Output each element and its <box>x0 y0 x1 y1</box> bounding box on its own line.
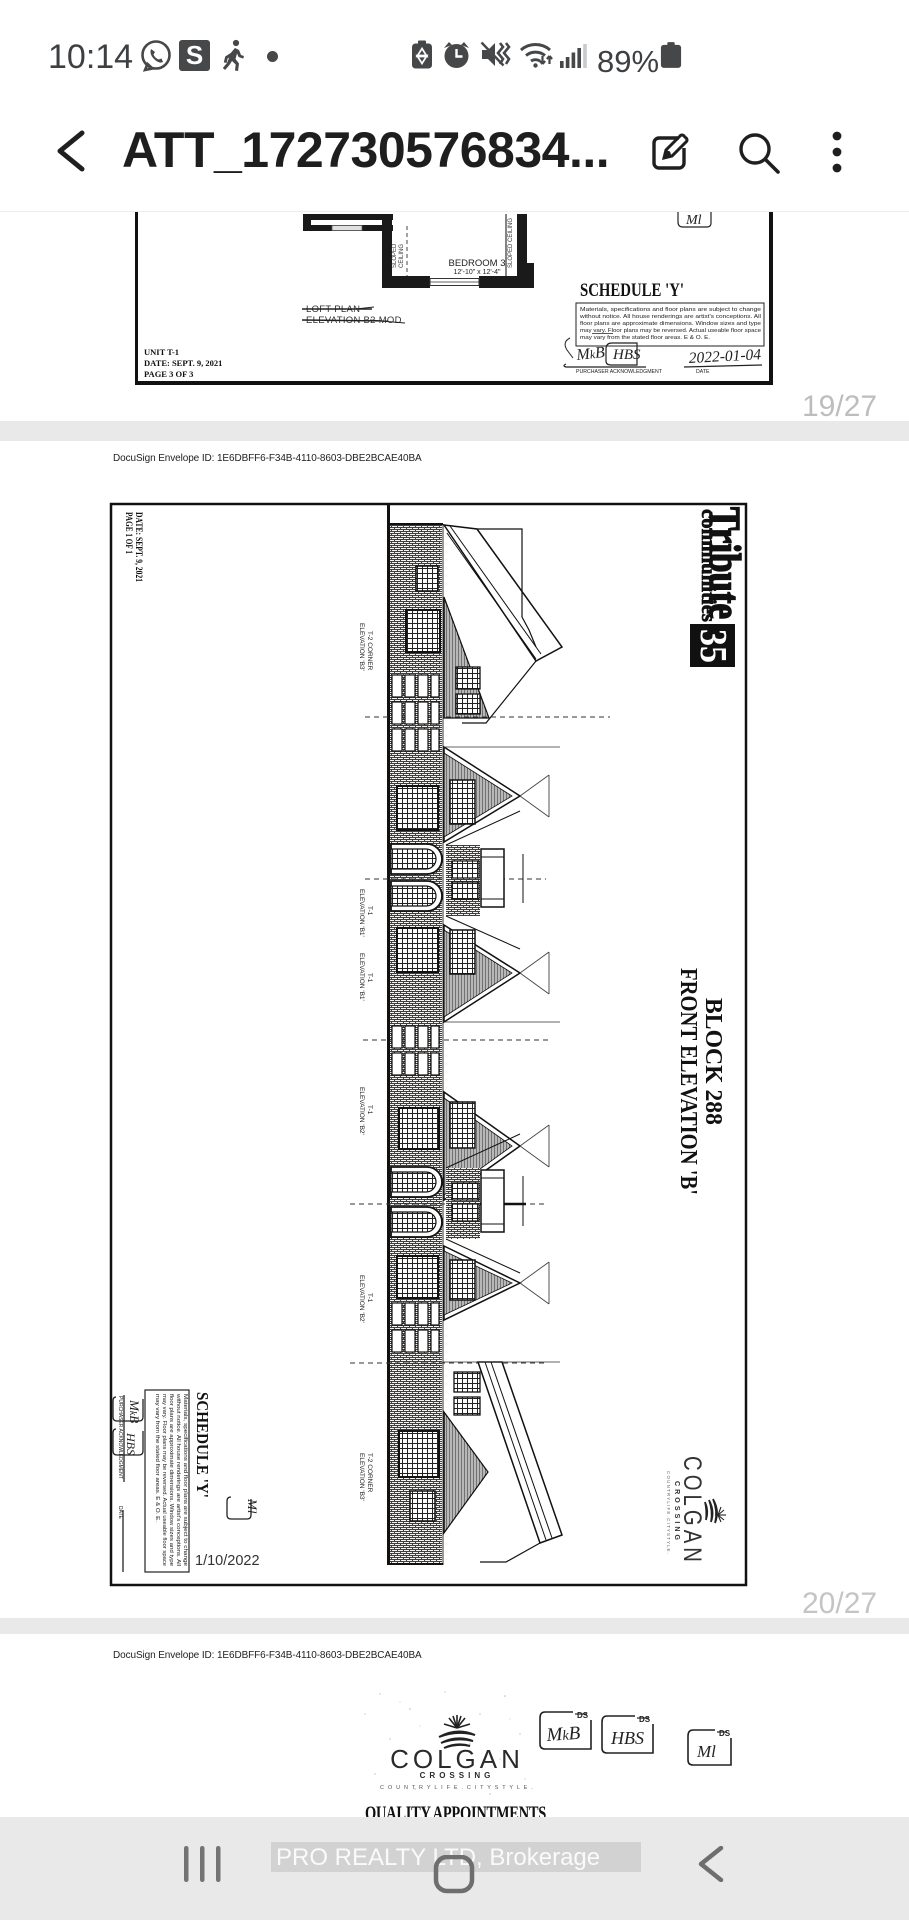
svg-text:C O U N T R Y L I F E . C I: C O U N T R Y L I F E . C I T Y S T Y L … <box>380 1785 534 1791</box>
svg-text:FRONT ELEVATION 'B': FRONT ELEVATION 'B' <box>675 968 701 1195</box>
svg-text:ELEVATION 'B2': ELEVATION 'B2' <box>358 1087 365 1135</box>
svg-text:DATE: SEPT. 9, 2021: DATE: SEPT. 9, 2021 <box>134 512 144 582</box>
svg-text:CEILING: CEILING <box>399 244 405 268</box>
svg-text:COLGAN: COLGAN <box>390 1744 524 1774</box>
svg-text:Ml: Ml <box>696 1742 716 1761</box>
svg-text:DS: DS <box>577 1711 589 1720</box>
svg-text:DS: DS <box>719 1729 731 1738</box>
svg-text:DATE: DATE <box>696 369 710 375</box>
svg-text:T-1: T-1 <box>366 1105 373 1115</box>
svg-text:DATE: DATE <box>117 1506 123 1520</box>
svg-text:2022-01-04: 2022-01-04 <box>688 346 761 367</box>
svg-text:ELEVATION 'B1': ELEVATION 'B1' <box>358 889 365 937</box>
svg-text:35: 35 <box>692 629 734 663</box>
svg-text:MkB: MkB <box>575 344 606 364</box>
svg-text:DocuSign Envelope ID: 1E6DBFF6: DocuSign Envelope ID: 1E6DBFF6-F34B-4110… <box>113 453 422 464</box>
svg-text:UNIT T-1: UNIT T-1 <box>144 347 179 357</box>
svg-text:CROSSING: CROSSING <box>420 1771 495 1780</box>
svg-text:may vary. Floor plans may be r: may vary. Floor plans may be reversed. A… <box>161 1394 167 1566</box>
svg-text:SCHEDULE 'Y': SCHEDULE 'Y' <box>580 280 684 301</box>
svg-text:ELEVATION 'B3': ELEVATION 'B3' <box>358 623 365 671</box>
svg-text:T-1: T-1 <box>366 906 373 916</box>
svg-text:BLOCK 288: BLOCK 288 <box>700 998 726 1125</box>
svg-text:T-1: T-1 <box>366 1293 373 1303</box>
svg-text:DATE: SEPT. 9, 2021: DATE: SEPT. 9, 2021 <box>144 358 222 368</box>
svg-text:SLOPED: SLOPED <box>392 243 398 268</box>
svg-text:Materials, specifications and: Materials, specifications and floor plan… <box>182 1394 188 1566</box>
svg-text:Ml: Ml <box>245 1498 260 1514</box>
svg-text:PAGE 1 OF 1: PAGE 1 OF 1 <box>124 512 134 554</box>
svg-text:PURCHASER ACKNOWLEDGMENT: PURCHASER ACKNOWLEDGMENT <box>576 369 663 375</box>
svg-text:without notice. All house rend: without notice. All house renderings are… <box>175 1393 181 1566</box>
svg-text:HBS: HBS <box>612 347 641 363</box>
svg-text:MkB: MkB <box>545 1723 581 1746</box>
svg-text:1/10/2022: 1/10/2022 <box>195 1553 260 1569</box>
svg-text:COLGAN: COLGAN <box>678 1456 706 1566</box>
svg-text:T-2 CORNER: T-2 CORNER <box>366 631 373 671</box>
svg-text:PURCHASER ACKNOWLEDGMENT: PURCHASER ACKNOWLEDGMENT <box>117 1396 123 1479</box>
svg-text:Ml: Ml <box>685 213 702 228</box>
svg-text:PAGE 3 OF 3: PAGE 3 OF 3 <box>144 369 193 379</box>
svg-text:HBS: HBS <box>124 1432 138 1455</box>
svg-text:SLOPED CEILING: SLOPED CEILING <box>508 218 514 268</box>
svg-text:CROSSING: CROSSING <box>673 1481 680 1543</box>
svg-text:BEDROOM 3: BEDROOM 3 <box>448 258 505 269</box>
svg-text:Materials, specifications and: Materials, specifications and floor plan… <box>580 307 761 313</box>
svg-text:MkB: MkB <box>127 1399 142 1423</box>
svg-text:C O U N T R Y L I F E . C: C O U N T R Y L I F E . C I T Y S T Y L … <box>666 1471 671 1554</box>
svg-text:floor plans are approximate di: floor plans are approximate dimensions. … <box>580 321 761 327</box>
svg-text:without notice. All house rend: without notice. All house renderings are… <box>579 314 761 320</box>
svg-text:floor plans are approximate di: floor plans are approximate dimensions. … <box>168 1394 174 1566</box>
svg-text:ELEVATION 'B2': ELEVATION 'B2' <box>358 1275 365 1323</box>
svg-text:may vary. Floor plans may be r: may vary. Floor plans may be reversed. A… <box>580 328 761 334</box>
svg-text:communities: communities <box>697 509 721 622</box>
svg-text:ELEVATION 'B3': ELEVATION 'B3' <box>358 1453 365 1501</box>
svg-text:T-1: T-1 <box>366 973 373 983</box>
svg-text:may vary from the stated floor: may vary from the stated floor areas. E … <box>154 1394 160 1522</box>
svg-text:SCHEDULE 'Y': SCHEDULE 'Y' <box>193 1392 212 1498</box>
svg-text:HBS: HBS <box>610 1728 644 1748</box>
svg-text:T-2 CORNER: T-2 CORNER <box>366 1453 373 1493</box>
svg-text:12'-10" x 12'-4": 12'-10" x 12'-4" <box>454 269 501 276</box>
svg-text:ELEVATION 'B1': ELEVATION 'B1' <box>358 953 365 1001</box>
svg-text:may vary from the stated floor: may vary from the stated floor areas. E … <box>580 335 710 341</box>
svg-text:DS: DS <box>639 1715 651 1724</box>
